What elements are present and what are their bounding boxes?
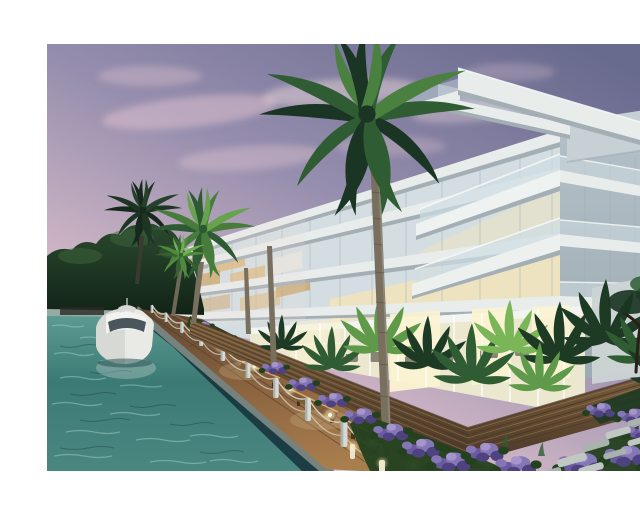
- scene-canvas: [40, 16, 640, 496]
- rendering-photo: Waterfront condominium architectural ren…: [40, 16, 640, 496]
- dock-strip: [60, 307, 104, 315]
